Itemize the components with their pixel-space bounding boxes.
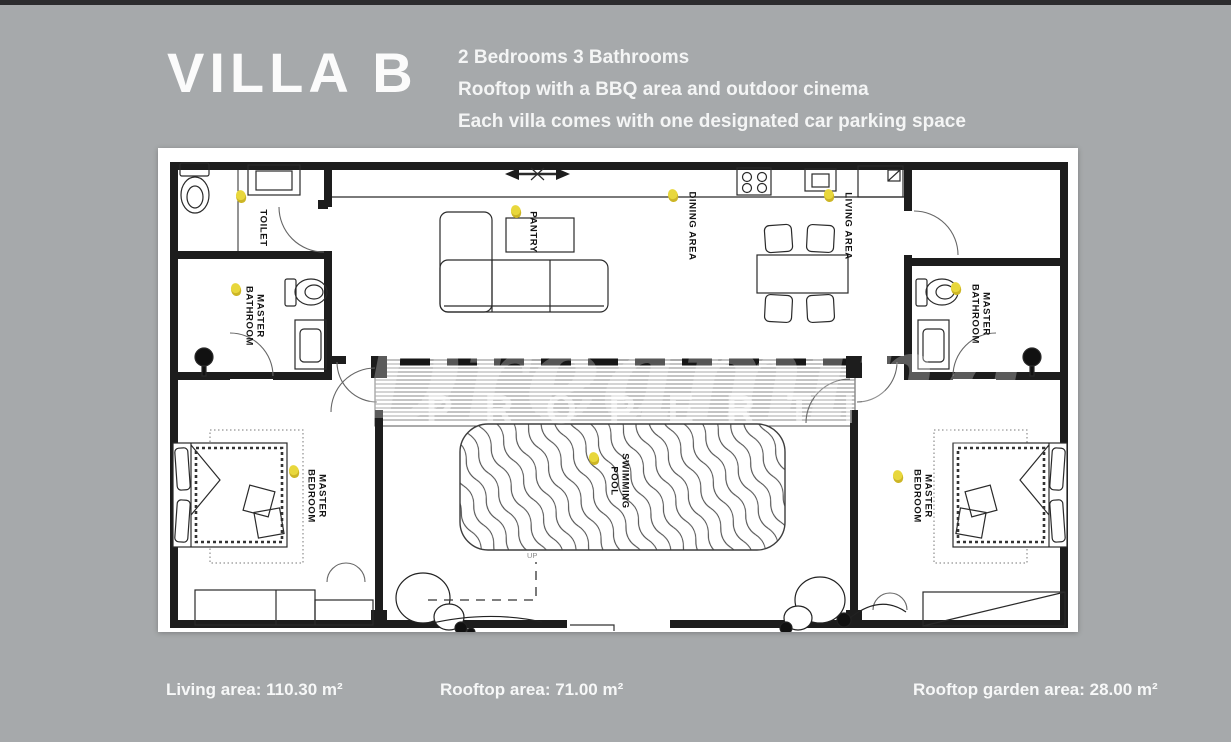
room-label-dining-area: DINING AREA [686,191,697,260]
floor-lamp-icon [195,348,213,366]
floorplan-drawing: UP [158,148,1078,632]
wardrobe [195,590,315,625]
description-line-3: Each villa comes with one designated car… [458,106,966,138]
room-label-pantry: PANTRY [527,211,538,253]
floorplan-sheet: UP TOILET MASTERBATHROOM PANTRY DINING A… [158,148,1078,632]
rooftop-garden-area-stat: Rooftop garden area: 28.00 m² [913,680,1158,700]
room-label-living-area: LIVING AREA [842,192,853,259]
stair-up-label: UP [527,551,537,560]
living-area-stat: Living area: 110.30 m² [166,680,343,700]
sofa-icon [440,212,608,312]
top-border-strip [0,0,1231,5]
room-label-master-bathroom-left: MASTERBATHROOM [244,286,265,346]
room-label-master-bathroom-right: MASTERBATHROOM [970,284,991,344]
left-bed-icon [173,430,373,625]
toilet-room-fixtures [180,163,300,251]
dining-set-icon [757,224,848,323]
description-line-1: 2 Bedrooms 3 Bathrooms [458,42,966,74]
kitchen-sink-icon [805,169,836,191]
rooftop-area-stat: Rooftop area: 71.00 m² [440,680,623,700]
pantry-island-icon [506,218,574,252]
room-label-master-bedroom-left: MASTERBEDROOM [306,469,327,523]
room-label-master-bedroom-right: MASTERBEDROOM [912,469,933,523]
kitchen-counter [332,166,904,197]
toilet-bowl-icon [295,279,327,305]
right-bed-icon [923,430,1067,626]
room-label-swimming-pool: SWIMMINGPOOL [609,453,630,508]
room-label-toilet: TOILET [257,209,268,246]
villa-description: 2 Bedrooms 3 Bathrooms Rooftop with a BB… [458,42,966,138]
deck-terrace [375,360,855,426]
villa-floorplan-page: VILLA B 2 Bedrooms 3 Bathrooms Rooftop w… [0,0,1231,742]
floor-lamp-icon [1023,348,1041,366]
description-line-2: Rooftop with a BBQ area and outdoor cine… [458,74,966,106]
page-title: VILLA B [167,40,418,105]
